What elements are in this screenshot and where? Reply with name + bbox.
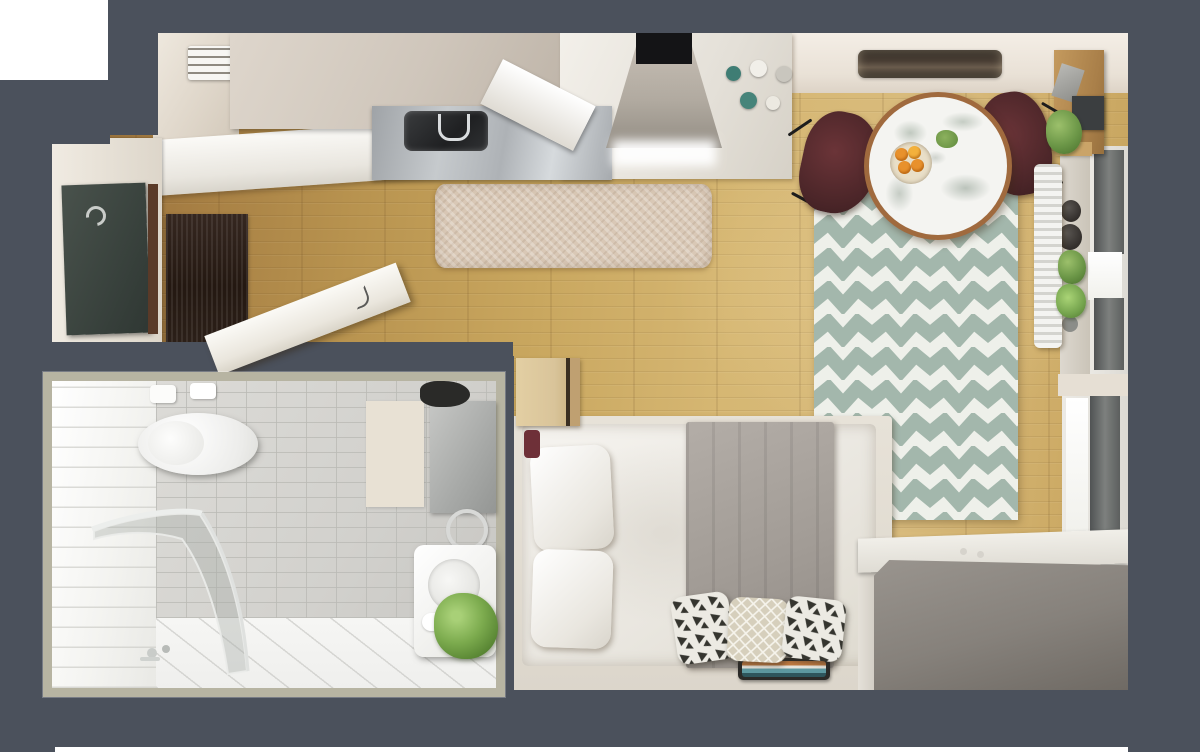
sink-faucet <box>438 114 470 141</box>
window-lower-glass <box>1066 398 1088 536</box>
nightstand-slot <box>566 358 570 426</box>
spice-jar <box>740 92 757 109</box>
net-cushion <box>726 596 789 663</box>
maroon-accent-pillow <box>524 430 540 458</box>
wall-top <box>108 0 1200 33</box>
white-pillow <box>530 549 613 650</box>
wall-right <box>1128 0 1200 752</box>
door-threshold <box>148 184 158 334</box>
exterior-bottom-edge <box>55 747 1128 752</box>
spice-jar <box>750 60 767 77</box>
desk-knob <box>977 551 984 558</box>
orange <box>898 161 911 174</box>
apartment-floorplan-render <box>0 0 1200 752</box>
orange <box>908 146 921 159</box>
wall-left-step <box>52 78 110 144</box>
bathroom-inset-panel <box>43 372 505 697</box>
exterior-notch <box>0 0 108 80</box>
white-pillow <box>529 444 614 552</box>
hanging-plant <box>1046 110 1082 154</box>
spice-jar <box>776 66 792 82</box>
ceiling-light-fixture <box>858 50 1002 78</box>
gray-desk-bench <box>874 560 1128 690</box>
radiator <box>1034 164 1062 348</box>
sill-pot <box>1062 316 1078 332</box>
spice-jar <box>766 96 780 110</box>
fruit-bowl <box>890 142 932 184</box>
nightstand-side <box>570 358 580 426</box>
range-hood-vent <box>636 28 692 64</box>
triangle-cushion <box>781 595 847 663</box>
wall-top-left-block <box>108 0 158 135</box>
window-upper-glass <box>1088 252 1122 300</box>
wall-pier <box>1058 374 1128 396</box>
beige-shag-rug <box>435 184 712 268</box>
curtain-upper <box>1094 150 1124 254</box>
floor-faucet <box>147 648 157 658</box>
orange <box>911 159 924 172</box>
succulent-sprig <box>936 130 958 148</box>
entry-door <box>61 183 150 336</box>
sill-plant <box>1058 250 1086 284</box>
wall-bottom <box>0 690 1200 752</box>
curtain-upper-2 <box>1094 298 1124 370</box>
curtain-lower <box>1090 396 1120 536</box>
cooktop-light <box>612 140 716 166</box>
desk-knob <box>960 548 967 555</box>
spice-jar <box>726 66 741 81</box>
curved-glass-shower <box>52 381 496 688</box>
round-marble-table <box>864 92 1012 240</box>
orange <box>895 148 908 161</box>
sill-plant <box>1056 284 1086 318</box>
wood-nightstand <box>516 358 580 426</box>
sill-vase <box>1061 200 1081 222</box>
white-door-handle <box>350 285 372 309</box>
